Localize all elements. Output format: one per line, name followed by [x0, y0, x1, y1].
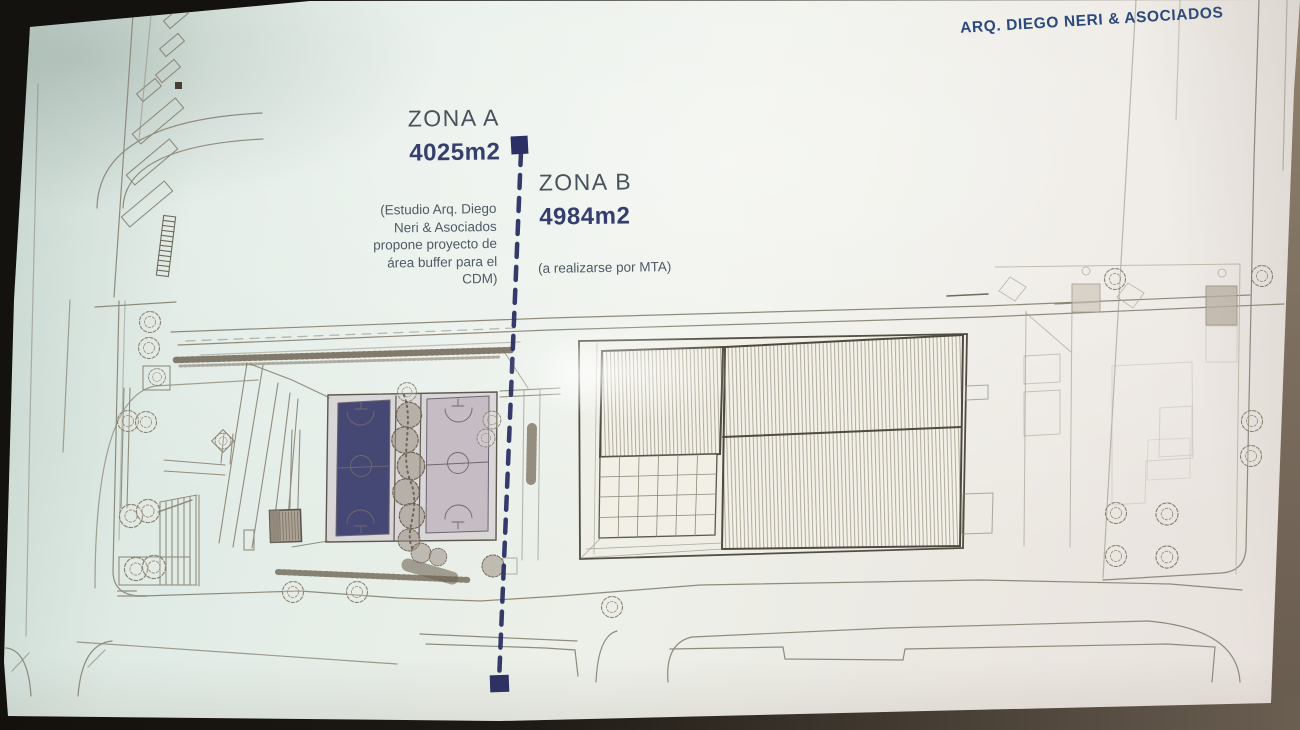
projection-photo: ZONA A 4025m2 (Estudio Arq. Diego Neri &…	[0, 0, 1300, 730]
zone-a-title: ZONA A	[407, 104, 499, 132]
site-plan-slide: ZONA A 4025m2 (Estudio Arq. Diego Neri &…	[0, 0, 1300, 730]
small-building	[269, 509, 301, 542]
zone-b-area: 4984m2	[539, 202, 633, 231]
divider-top-marker	[511, 136, 529, 155]
zone-a-area: 4025m2	[408, 138, 500, 167]
zone-b-label: ZONA B 4984m2	[539, 168, 633, 231]
zone-b-title: ZONA B	[539, 168, 633, 196]
zone-a-label: ZONA A 4025m2	[407, 104, 500, 167]
projector-glare-small	[533, 338, 625, 412]
divider-bottom-marker	[490, 675, 510, 693]
zone-b-note: (a realizarse por MTA)	[538, 259, 671, 276]
zone-a-note: (Estudio Arq. Diego Neri & Asociados pro…	[346, 200, 497, 290]
basketball-courts	[326, 383, 497, 566]
